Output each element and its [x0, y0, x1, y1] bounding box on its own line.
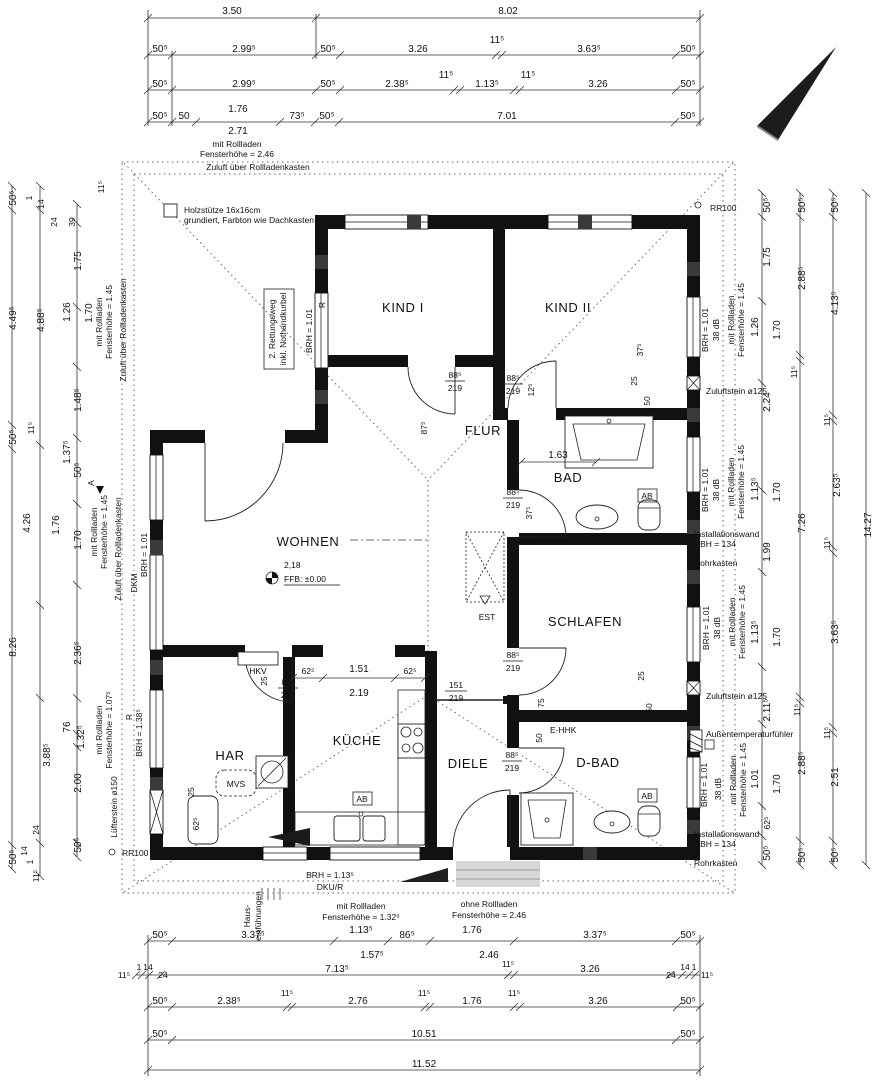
dim-label: 1.76	[228, 104, 248, 115]
dim-label: 3.50	[222, 6, 242, 17]
hauseinfuehrung-1: Haus-	[242, 905, 252, 928]
dim-small: 50	[534, 733, 544, 743]
dim-label: 50⁵	[152, 79, 167, 90]
dim-label: 14	[36, 199, 46, 209]
kitchen-counter-right	[398, 690, 425, 845]
note-mit-rollladen: mit Rollladen	[89, 507, 99, 556]
room-kueche: KÜCHE	[333, 733, 382, 748]
dim-label: 1	[25, 859, 35, 864]
dim-label: 2.88⁵	[797, 266, 808, 290]
door-size-w: 88⁵	[507, 487, 520, 497]
kitchen-sink	[334, 812, 385, 841]
dim-label: 2.88⁵	[797, 751, 808, 775]
dim-label: 2.38⁵	[385, 79, 409, 90]
dim-label: 11⁵	[26, 422, 36, 434]
dim-label: 50	[178, 111, 190, 122]
level-marker	[266, 572, 278, 584]
dim-label: 11⁵	[118, 970, 130, 980]
dim-small: 75	[536, 698, 546, 708]
dim-label: 76	[62, 721, 73, 733]
dim-label: 24	[158, 970, 168, 980]
dim-small: 87⁵	[419, 422, 429, 435]
zuluftstein-label: Zuluftstein ø125	[706, 691, 767, 701]
dim-label: 11⁵	[521, 70, 536, 81]
mvs-label: MVS	[227, 779, 246, 789]
door-size-w: 88⁵	[506, 750, 519, 760]
door-size-w: 88⁵	[449, 370, 462, 380]
dim-label: 50⁵	[320, 79, 335, 90]
door-flur-diele-hinge-r	[503, 696, 507, 704]
rr100-circle-top	[695, 202, 701, 208]
room-flur: FLUR	[465, 423, 501, 438]
door-flur-diele	[430, 696, 507, 704]
dim-label: 1	[137, 962, 142, 972]
dim-label: 39	[67, 217, 77, 227]
dim-label: 1.76	[462, 996, 482, 1007]
dim-label: 2.99⁵	[232, 79, 256, 90]
door-size-h: 219	[506, 663, 520, 673]
dim-label: 2.51	[830, 767, 841, 787]
bad-toilet	[638, 500, 660, 530]
rohrkasten-label: Rohrkasten	[694, 558, 738, 568]
est-shaft	[466, 532, 504, 604]
installationswand-label-1: Installationswand	[694, 829, 759, 839]
kitchen-sink-basin-1	[334, 816, 360, 841]
dim-label: 1.26	[750, 317, 761, 337]
est-shaft-x	[466, 532, 504, 602]
note-holzstuetze-2: grundiert, Farbton wie Dachkasten	[184, 215, 314, 225]
dim-label: 1.75	[73, 251, 84, 271]
dim-label: 50⁵	[680, 930, 695, 941]
room-bad: BAD	[554, 470, 583, 485]
note-fensterhoehe: Fensterhöhe = 1.45	[736, 445, 746, 519]
db-label: 38 dB	[713, 778, 723, 801]
floorplan-page: 3.50 8.02 50⁵ 2.99⁵ 50⁵ 3.26 11⁵ 3.63⁵ 5…	[0, 0, 882, 1080]
window-kind2-east	[687, 297, 700, 357]
dim-small: 50	[642, 396, 652, 406]
hkv-label: HKV	[249, 666, 267, 676]
dim-label: 11⁵	[502, 959, 514, 969]
washing-machine	[256, 756, 288, 788]
luefterstein-label: Lüfterstein ø150	[109, 776, 119, 838]
zuluftstein-label: Zuluftstein ø125	[706, 386, 767, 396]
atf-square	[705, 740, 714, 749]
shower-pan	[521, 793, 573, 845]
dim-small: 25	[259, 676, 269, 686]
dim-label: 3.26	[408, 44, 428, 55]
note-zuluft: Zuluft über Rollladenkasten	[118, 278, 128, 382]
dim-label: 3.37⁵	[583, 930, 607, 941]
dku-label: DKU/R	[317, 882, 343, 892]
bad-sink	[576, 505, 618, 529]
note-mit-rollladen: mit Rollladen	[726, 295, 736, 344]
note-fensterhoehe: Fensterhöhe = 1.45	[738, 743, 748, 817]
dim-label: 10.51	[411, 1029, 436, 1040]
dim-label: 3.63⁵	[830, 620, 841, 644]
dim-label: 50⁵	[152, 111, 167, 122]
dim-small: 62⁵	[191, 818, 201, 831]
dim-label: 24	[49, 217, 59, 227]
dim-label: 14	[19, 846, 29, 856]
r-marker: R	[317, 302, 327, 308]
dim-small: 37⁵	[635, 344, 645, 357]
note-holzstuetze-1: Holzstütze 16x16cm	[184, 205, 261, 215]
room-dbad: D-BAD	[576, 755, 619, 770]
room-schlafen: SCHLAFEN	[548, 614, 622, 629]
note-fensterhoehe: Fensterhöhe = 2.46	[200, 149, 274, 159]
dim-label: 4.26	[22, 513, 33, 533]
dim-label: 50⁵	[152, 996, 167, 1007]
dbad-sink	[594, 811, 630, 833]
est-shaft-box	[466, 532, 504, 602]
door-size-h-wide: 219	[449, 693, 463, 703]
note-ohne-rollladen: ohne Rollladen	[461, 899, 518, 909]
dim-kitchen: 2.19	[349, 688, 369, 699]
dim-label: 11⁵	[439, 70, 454, 81]
brh-label: BRH = 1.01	[699, 763, 709, 807]
dim-label: 1.75	[762, 247, 773, 267]
window-kueche	[330, 847, 420, 860]
wohnen-area: 2,18	[284, 560, 301, 570]
marker-a-triangle	[96, 486, 104, 494]
dim-label: 50⁵	[319, 111, 334, 122]
dim-label: 2.63⁵	[832, 473, 843, 497]
dim-label: 11⁵	[822, 537, 832, 549]
door-size-h: 219	[506, 386, 520, 396]
dim-label: 2.36⁵	[73, 641, 84, 665]
note-mit-rollladen: mit Rollladen	[727, 597, 737, 646]
dim-label: 14.27	[863, 512, 874, 537]
entrance	[400, 861, 540, 887]
dim-label: 3.26	[588, 79, 608, 90]
dim-label: 14	[680, 962, 690, 972]
dim-label: 7.01	[497, 111, 517, 122]
dim-label: 1.70	[772, 482, 783, 502]
rr100-circle-bottom	[109, 849, 115, 855]
dim-label: 11⁵	[418, 988, 430, 998]
north-arrow-icon	[757, 47, 836, 140]
installationswand-label-1: Installationswand	[694, 529, 759, 539]
dim-label: 11⁵	[789, 366, 799, 378]
brh-label: BRH = 1.01	[139, 533, 149, 577]
dim-small: 12⁵	[526, 384, 536, 397]
rettungsweg-1: 2. Rettungsweg	[267, 299, 277, 358]
note-mit-rollladen: mit Rollladen	[212, 139, 261, 149]
dim-label: 86⁵	[399, 930, 414, 941]
bathtub	[565, 416, 653, 468]
dim-label: 14	[143, 962, 153, 972]
rohrkasten-label: Rohrkasten	[694, 858, 738, 868]
window-schlafen	[687, 607, 700, 662]
dim-label: 3.26	[580, 964, 600, 975]
note-zuluft: Zuluft über Rollladenkasten	[113, 497, 123, 601]
dim-label: 3.37⁵	[241, 930, 265, 941]
dim-small: 25	[186, 787, 196, 797]
dim-label: 11⁵	[701, 970, 713, 980]
door-flur-diele-hinge-l	[430, 696, 434, 704]
dim-kitchen: 62⁵	[404, 666, 417, 676]
note-fensterhoehe: Fensterhöhe = 1.45	[99, 495, 109, 569]
dbad-toilet-bowl	[638, 806, 660, 836]
est-shaft-triangle	[480, 596, 490, 604]
dim-label: 2.76	[348, 996, 368, 1007]
door-size-w: 88⁵	[282, 677, 295, 687]
entrance-triangle	[400, 868, 448, 882]
dim-label: 2.71	[228, 126, 248, 137]
dim-label: 62⁵	[762, 817, 772, 830]
door-size-w-wide: 151	[449, 680, 463, 690]
window-wohnen-1	[150, 455, 163, 520]
brh-label: BRH = 1.13⁵	[306, 870, 354, 880]
window-bad	[687, 437, 700, 492]
dim-label: 7.26	[797, 513, 808, 533]
shower	[521, 793, 573, 845]
dim-label: 50⁵	[680, 111, 695, 122]
note-fensterhoehe: Fensterhöhe = 1.45	[737, 585, 747, 659]
brh-label: BRH = 1.01	[701, 606, 711, 650]
dim-label: 11⁵	[792, 704, 802, 716]
dim-small: 25	[629, 376, 639, 386]
dim-label: 50⁵	[680, 79, 695, 90]
est-label: EST	[479, 612, 496, 622]
hkv-box	[238, 652, 278, 665]
dim-label: 11⁵	[96, 181, 106, 193]
brh-label: BRH = 1.01	[700, 468, 710, 512]
door-size-h: 219	[448, 383, 462, 393]
dim-label: 50⁵	[152, 1029, 167, 1040]
dim-label: 1.76	[462, 925, 482, 936]
dim-label: 73⁵	[289, 111, 304, 122]
brh-label: BRH = 1.38⁵	[134, 709, 144, 757]
kitchen-sink-faucet	[359, 812, 363, 816]
dim-label: 2.00	[73, 773, 84, 793]
dim-label: 1	[692, 962, 697, 972]
dim-small: 25	[636, 671, 646, 681]
dim-label: 4.88⁵	[36, 308, 47, 332]
text-layer: 3.50 8.02 50⁵ 2.99⁵ 50⁵ 3.26 11⁵ 3.63⁵ 5…	[8, 6, 874, 1070]
dim-kitchen: 62⁵	[302, 666, 315, 676]
aussentemp-label: Außentemperaturfühler	[706, 729, 794, 739]
dim-label: 4.13⁵	[830, 291, 841, 315]
note-fensterhoehe: Fensterhöhe = 1.07⁵	[104, 691, 114, 768]
floorplan-drawing: 3.50 8.02 50⁵ 2.99⁵ 50⁵ 3.26 11⁵ 3.63⁵ 5…	[0, 0, 882, 1080]
stove	[398, 724, 425, 758]
door-size-h: 219	[281, 690, 295, 700]
dim-label: 2.46	[479, 950, 499, 961]
dim-kitchen: 1.51	[349, 664, 369, 675]
dim-label: 3.88⁵	[42, 743, 53, 767]
dim-label: 11⁵	[822, 414, 832, 426]
door-size-h: 219	[505, 763, 519, 773]
dim-label: 1.01	[750, 769, 761, 789]
db-label: 38 dB	[711, 319, 721, 342]
room-diele: DIELE	[448, 756, 489, 771]
dim-label: 50⁵	[8, 849, 19, 864]
window-har	[150, 690, 163, 768]
rr100-label: RR100	[122, 848, 149, 858]
db-label: 38 dB	[712, 617, 722, 640]
kitchen-sink-basin-2	[363, 816, 385, 841]
brh-label: BRH = 1.01	[304, 309, 314, 353]
ehhk-label: E-HHK	[550, 725, 577, 735]
dim-label: 50⁵	[680, 44, 695, 55]
dim-label: 2.99⁵	[232, 44, 256, 55]
room-kind1: KIND I	[382, 300, 424, 315]
dim-small: 50	[644, 703, 654, 713]
dim-label: 50⁵	[762, 197, 773, 212]
r-marker: R	[124, 714, 134, 720]
dim-label: 1.99	[762, 542, 773, 562]
dim-label: 1.76	[51, 515, 62, 535]
dkm-label: DKM	[129, 574, 139, 593]
dim-label: 3.63⁵	[577, 44, 601, 55]
note-fensterhoehe: Fensterhöhe = 2.46	[452, 910, 526, 920]
dim-label: 50⁵	[320, 44, 335, 55]
dim-label: 2.11⁵	[762, 699, 773, 722]
dim-label: 1.70	[772, 320, 783, 340]
dim-label: 50⁵	[152, 44, 167, 55]
north-arrow-triangle	[757, 47, 836, 140]
note-mit-rollladen: mit Rollladen	[94, 297, 104, 346]
dim-label: 2.38⁵	[217, 996, 241, 1007]
dim-label: 24	[666, 970, 676, 980]
door-size-w: 88⁵	[507, 650, 520, 660]
entrance-step	[456, 861, 540, 887]
dim-label: 7.13⁵	[325, 964, 349, 975]
dim-label: 1.13⁵	[750, 477, 761, 501]
holzstuetze-symbol	[164, 204, 177, 217]
room-har: HAR	[215, 748, 244, 763]
dim-label: 1.57⁵	[360, 950, 384, 961]
dim-label: 24	[31, 825, 41, 835]
dim-label: 11⁵	[508, 988, 520, 998]
dim-label: 3.26	[588, 996, 608, 1007]
dim-label: 1.32⁵	[76, 725, 87, 749]
ehhk-label: E-HHK	[536, 531, 563, 541]
dim-label: 50⁵	[680, 1029, 695, 1040]
marker-a: A	[86, 480, 96, 486]
dim-label: 1.13⁵	[750, 620, 761, 644]
installationswand-label-2: RBH = 134	[694, 839, 736, 849]
dim-label: 11⁵	[281, 988, 293, 998]
bad-tub-dim: 1.63	[548, 450, 568, 461]
dim-label: 11.52	[412, 1059, 437, 1070]
note-fensterhoehe: Fensterhöhe = 1.32⁵	[322, 912, 399, 922]
dim-label: 50⁵	[762, 845, 773, 860]
dim-label: 1	[24, 195, 34, 200]
dimension-chains	[8, 10, 870, 1076]
door-size-w: 88⁵	[507, 373, 520, 383]
dim-label: 50⁵	[8, 190, 19, 205]
bad-toilet-bowl	[638, 500, 660, 530]
dim-label: 11⁵	[31, 870, 41, 882]
dim-label: 8.02	[498, 6, 518, 17]
note-mit-rollladen: mit Rollladen	[726, 457, 736, 506]
note-mit-rollladen: mit Rollladen	[336, 901, 385, 911]
dim-label: 11⁵	[490, 35, 505, 46]
dim-label: 50⁵	[830, 847, 841, 862]
dim-label: 1.70	[772, 774, 783, 794]
note-fensterhoehe: Fensterhöhe = 1.45	[736, 283, 746, 357]
dim-label: 50⁵	[73, 837, 84, 852]
note-fensterhoehe: Fensterhöhe = 1.45	[104, 285, 114, 359]
ab-label: AB	[356, 794, 368, 804]
dim-label: 1.70	[73, 530, 84, 550]
dim-label: 1.70	[772, 627, 783, 647]
note-mit-rollladen: mit Rollladen	[728, 755, 738, 804]
dim-label: 4.49⁵	[8, 306, 19, 330]
dim-label: 1.13⁵	[475, 79, 499, 90]
room-kind2: KIND II	[545, 300, 591, 315]
ab-label: AB	[641, 491, 653, 501]
dim-label: 1.26	[62, 302, 73, 322]
dim-label: 1.48⁵	[73, 388, 84, 412]
dim-label: 8.26	[8, 637, 19, 657]
note-zuluft: Zuluft über Rollladenkasten	[206, 162, 310, 172]
dim-right	[758, 189, 870, 869]
db-label: 38 dB	[711, 479, 721, 502]
ab-label: AB	[641, 791, 653, 801]
dim-label: 50⁵	[152, 930, 167, 941]
wohnen-ffb: FFB: ±0.00	[284, 574, 326, 584]
rettungsweg-2: inkl. Nothandkurbel	[278, 293, 288, 366]
dim-label: 1.37⁵	[62, 440, 73, 464]
room-wohnen: WOHNEN	[277, 534, 340, 549]
rr100-label: RR100	[710, 203, 737, 213]
dim-label: 50⁵	[73, 462, 84, 477]
dim-label: 50⁵	[8, 429, 19, 444]
hauseinfuehrung-dashes	[262, 888, 280, 900]
window-har-south	[263, 847, 307, 860]
dim-label: 50⁵	[830, 197, 841, 212]
dim-left	[8, 182, 81, 880]
installationswand-label-2: RBH = 134	[694, 539, 736, 549]
dim-label: 1.13⁵	[349, 925, 373, 936]
door-size-h: 219	[506, 500, 520, 510]
dim-label: 50⁵	[797, 197, 808, 212]
note-mit-rollladen: mit Rollladen	[94, 705, 104, 754]
dbad-toilet	[638, 806, 660, 836]
window-wohnen-2	[150, 555, 163, 650]
dim-small: 37⁵	[524, 507, 534, 520]
brh-label: BRH = 1.01	[700, 308, 710, 352]
dim-label: 50⁵	[680, 996, 695, 1007]
dim-label: 50⁵	[797, 847, 808, 862]
dim-label: 11⁵	[822, 727, 832, 739]
